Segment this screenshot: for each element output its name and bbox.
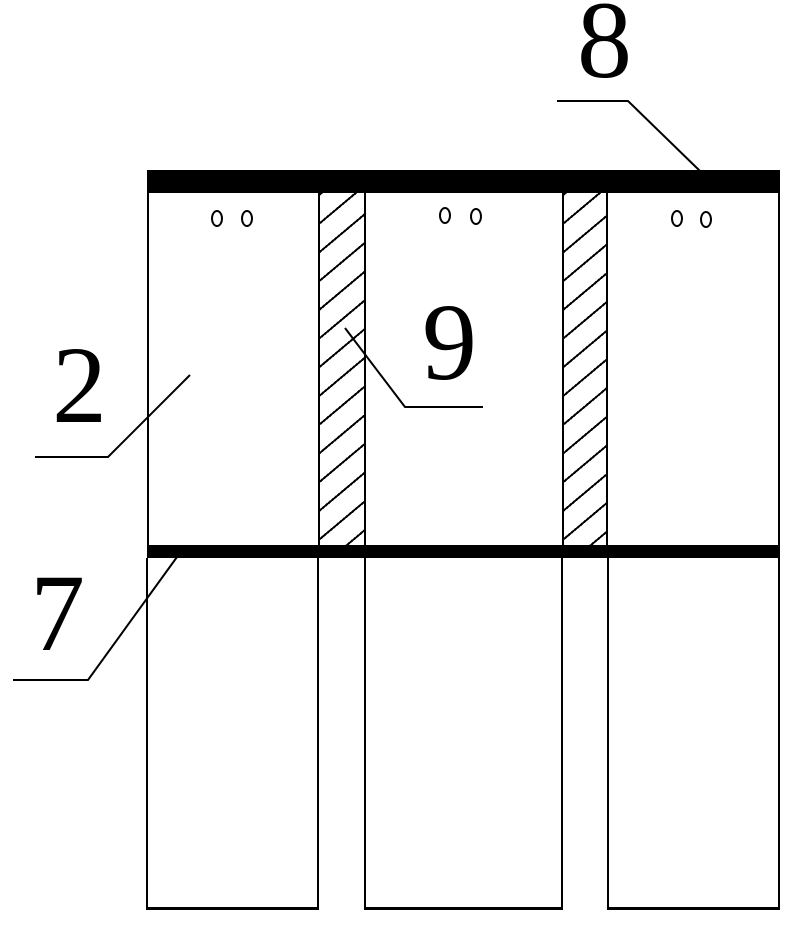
lower-panel-left <box>146 558 319 910</box>
lower-panel-middle <box>364 558 563 910</box>
label-middle-plate: 7 <box>30 558 85 668</box>
hole-icon <box>241 210 253 227</box>
hole-icon <box>211 210 223 227</box>
hatched-column-left <box>318 193 366 545</box>
top-plate-bar <box>147 170 780 193</box>
middle-plate-bar <box>147 545 780 558</box>
lower-panel-right <box>607 558 780 910</box>
upper-panel-right <box>608 193 780 545</box>
patent-figure-canvas: 8 2 7 9 <box>0 0 795 928</box>
hole-icon <box>700 211 712 228</box>
hole-icon <box>470 208 482 225</box>
hole-icon <box>439 207 451 224</box>
label-panel: 2 <box>52 330 107 440</box>
label-top-plate: 8 <box>577 0 632 95</box>
upper-panel-left <box>147 193 318 545</box>
label-hatched-column: 9 <box>422 287 477 397</box>
leader-line-8 <box>557 101 700 171</box>
hole-icon <box>671 210 683 227</box>
hatched-column-right <box>562 193 608 545</box>
